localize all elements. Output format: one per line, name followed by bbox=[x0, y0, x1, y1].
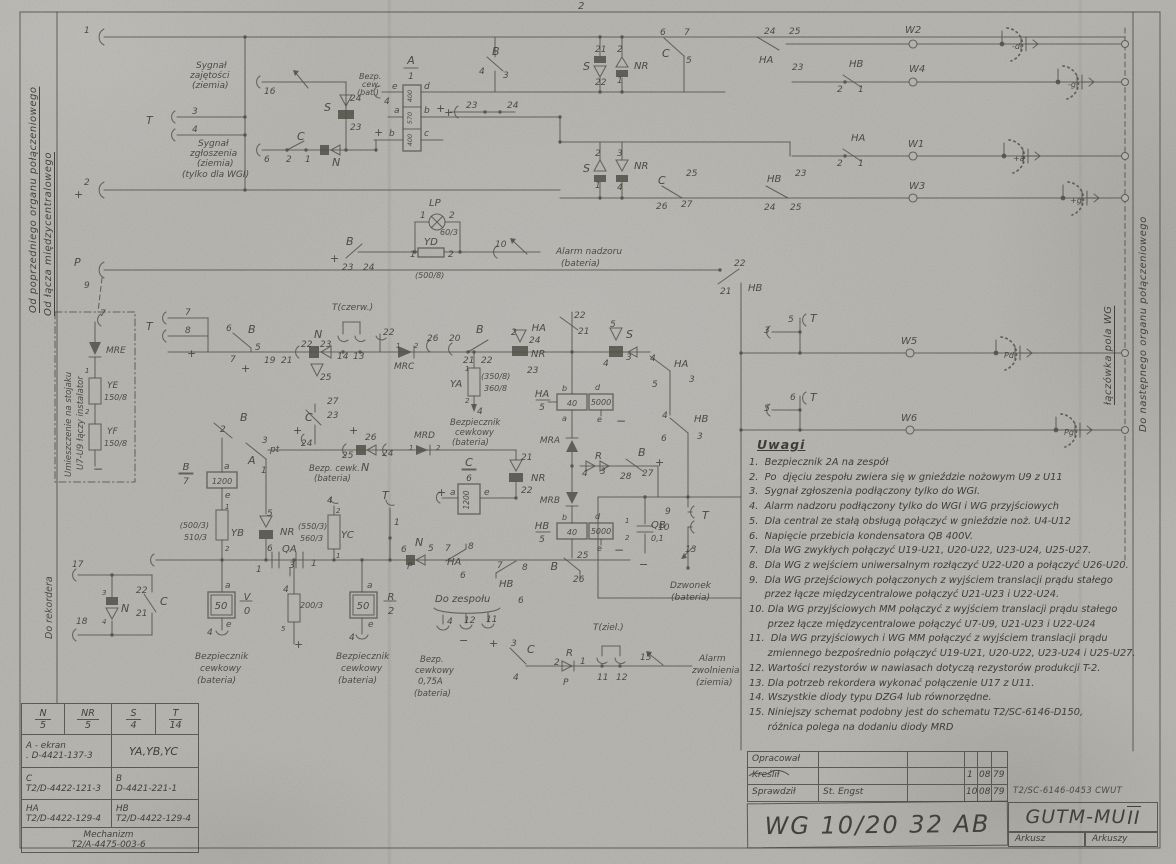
schematic-label: 1 bbox=[409, 444, 413, 452]
tb-d: 08 bbox=[978, 785, 992, 802]
parts-cell-A: A - ekran. D-4421-137-3 bbox=[22, 735, 111, 767]
schematic-label: 4 bbox=[192, 125, 198, 135]
schematic-label: 24 bbox=[382, 449, 394, 459]
schematic-label: 5000 bbox=[591, 527, 611, 536]
schematic-label: 5 bbox=[788, 315, 794, 325]
schematic-label: 2 bbox=[286, 155, 292, 165]
schematic-label: N bbox=[121, 602, 129, 615]
schematic-label: W6 bbox=[901, 413, 917, 424]
schematic-label: MRB bbox=[540, 496, 560, 506]
do-rekordera bbox=[73, 569, 156, 641]
schematic-label: Bezp. bbox=[420, 655, 444, 665]
schematic-label: 1 bbox=[410, 250, 416, 260]
schematic-label: 4 bbox=[513, 673, 519, 683]
schematic-label: 5 bbox=[539, 535, 545, 545]
schematic-label: Bezpiecznik bbox=[450, 418, 501, 428]
tb-name: St. Engst bbox=[819, 785, 908, 802]
schematic-label: 14 bbox=[337, 352, 349, 362]
schematic-label: 2 bbox=[449, 211, 455, 221]
schematic-label: 4 bbox=[479, 67, 485, 77]
schematic-label: 24 bbox=[764, 27, 776, 37]
schematic-label: B bbox=[476, 323, 484, 336]
schematic-label: + bbox=[187, 347, 196, 360]
schematic-label: 21 bbox=[136, 609, 147, 619]
schematic-label: B bbox=[248, 323, 256, 336]
schematic-label: 15 bbox=[640, 653, 652, 663]
schematic-label: 5 bbox=[281, 625, 286, 633]
schematic-label: b bbox=[389, 129, 395, 139]
schematic-label: U7-U9 łączy instalator bbox=[76, 376, 86, 470]
model-name: GUTM-MUII bbox=[1008, 802, 1158, 832]
schematic-label: 50 bbox=[357, 601, 370, 612]
schematic-label: + bbox=[444, 106, 453, 119]
schematic-label: HB bbox=[849, 59, 864, 70]
note-line: 5. Dla central ze stałą obsługą połączyć… bbox=[749, 515, 1163, 530]
schematic-label: -g bbox=[1068, 80, 1076, 89]
schematic-label: zajętości bbox=[189, 70, 230, 81]
schematic-label: 2 bbox=[554, 658, 560, 668]
schematic-label: 10 bbox=[495, 240, 507, 250]
schematic-label: 19 bbox=[264, 356, 276, 366]
tb-d: 1 bbox=[965, 768, 978, 785]
schematic-label: NR bbox=[531, 349, 545, 360]
schematic-label: − bbox=[616, 414, 626, 428]
schematic-label: 3 bbox=[192, 107, 198, 117]
schematic-label: 200/3 bbox=[300, 601, 323, 610]
schematic-label: 4 bbox=[650, 354, 656, 364]
schematic-label: 17 bbox=[72, 560, 84, 570]
schematic-label: 26 bbox=[427, 334, 439, 344]
schematic-label: YB bbox=[231, 528, 244, 539]
schematic-label: W2 bbox=[905, 25, 921, 36]
schematic-label: 1 bbox=[305, 155, 311, 165]
note-line: 10. Dla WG przyjściowych MM połączyć z w… bbox=[749, 603, 1163, 618]
schematic-label: +a bbox=[1013, 154, 1025, 163]
schematic-label: 0,1 bbox=[651, 534, 664, 543]
frac-den: 14 bbox=[169, 720, 181, 731]
schematic-label: 21 bbox=[578, 327, 589, 337]
tb-d: 10 bbox=[965, 785, 978, 802]
schematic-label: 6 bbox=[460, 571, 466, 581]
schematic-label: cewkowy bbox=[455, 428, 495, 438]
schematic-label: e bbox=[597, 544, 602, 553]
schematic-label: A bbox=[406, 54, 415, 67]
schematic-label: 2 bbox=[220, 425, 226, 435]
schematic-label: 25 bbox=[342, 451, 354, 461]
schematic-label: 6 bbox=[518, 596, 524, 606]
edge-label-right-edge: Do następnego organu połączeniowego bbox=[1138, 112, 1149, 432]
schematic-label: 5 bbox=[686, 56, 692, 66]
schematic-label: 8 bbox=[522, 563, 528, 573]
parts-frac-S: S4 bbox=[111, 704, 155, 734]
schematic-label: 9 bbox=[665, 507, 671, 517]
schematic-label: 0 bbox=[244, 606, 250, 617]
schematic-label: 24 bbox=[764, 203, 776, 213]
schematic-label: LP bbox=[429, 198, 442, 209]
schematic-label: 2 bbox=[837, 85, 843, 95]
schematic-label: 6 bbox=[401, 545, 407, 555]
schematic-label: 2 bbox=[84, 178, 90, 188]
schematic-label: 22 bbox=[521, 486, 533, 496]
schematic-label: 5 bbox=[610, 320, 616, 330]
schematic-label: 23 bbox=[527, 366, 539, 376]
schematic-label: S bbox=[583, 162, 590, 175]
schematic-label: − bbox=[614, 543, 624, 557]
schematic-label: 1 bbox=[465, 365, 469, 373]
schematic-label: 23 bbox=[792, 63, 804, 73]
schematic-label: 3 bbox=[697, 432, 703, 442]
schematic-label: N bbox=[415, 536, 423, 549]
schematic-label: 3 bbox=[503, 71, 509, 81]
schematic-label: C bbox=[465, 456, 473, 469]
schematic-label: 13 bbox=[353, 352, 365, 362]
note-line: 15. Niniejszy schemat podobny jest do sc… bbox=[749, 706, 1163, 721]
notes-title: Uwagi bbox=[757, 437, 1163, 452]
arkuszy-cell: Arkuszy bbox=[1085, 832, 1158, 847]
schematic-label: 1 bbox=[580, 657, 586, 667]
schematic-label: 6 bbox=[226, 324, 232, 334]
tb-signature bbox=[908, 768, 965, 785]
schematic-label: 6 bbox=[790, 393, 796, 403]
schematic-label: (350/8) bbox=[481, 372, 510, 381]
schematic-label: B bbox=[550, 560, 558, 573]
schematic-label: MRD bbox=[414, 431, 435, 441]
schematic-label: 2 bbox=[465, 397, 470, 405]
schematic-label: + bbox=[374, 126, 383, 139]
schematic-label: cewkowy bbox=[415, 666, 455, 676]
schematic-label: + bbox=[74, 188, 83, 201]
schematic-label: Alarm nadzoru bbox=[555, 247, 622, 257]
schematic-label: V bbox=[244, 592, 252, 603]
schematic-label: 1 bbox=[225, 503, 229, 511]
schematic-label: 150/8 bbox=[104, 393, 127, 402]
schematic-label: YE bbox=[107, 381, 118, 391]
schematic-label: Bezpiecznik bbox=[195, 652, 249, 662]
note-line: 4. Alarm nadzoru podłączony tylko do WGI… bbox=[749, 500, 1163, 515]
edge-label-left-outer: Od poprzedniego organu połączeniowego bbox=[28, 48, 39, 313]
parts-cell-HB: HBT2/D-4422-129-4 bbox=[111, 800, 195, 827]
schematic-label: 2 bbox=[625, 534, 630, 542]
schematic-label: 3 bbox=[511, 639, 517, 649]
schematic-label: 5 bbox=[764, 404, 770, 414]
schematic-label: Bezpiecznik bbox=[336, 652, 390, 662]
schematic-label: 60/3 bbox=[440, 228, 458, 237]
schematic-label: 510/3 bbox=[184, 533, 207, 542]
schematic-label: 22 bbox=[383, 328, 395, 338]
schematic-label: 150/8 bbox=[104, 439, 127, 448]
notes-block: Uwagi 1. Bezpiecznik 2A na zespół2. Po d… bbox=[749, 437, 1163, 735]
schematic-label: Do zespołu bbox=[435, 594, 490, 605]
schematic-label: (ziemia) bbox=[192, 81, 229, 91]
schematic-label: 22 bbox=[595, 78, 607, 88]
schematic-label: 570 bbox=[406, 112, 414, 124]
schematic-label: b bbox=[424, 106, 430, 116]
schematic-label: HB bbox=[499, 579, 514, 590]
schematic-label: 1 bbox=[394, 518, 400, 528]
schematic-label: 1 bbox=[858, 85, 864, 95]
tb-d bbox=[992, 751, 1008, 768]
schematic-label: pt bbox=[269, 445, 280, 455]
schematic-label: 360/8 bbox=[484, 384, 507, 393]
schematic-label: HB bbox=[694, 414, 709, 425]
schematic-label: 28 bbox=[620, 472, 632, 482]
schematic-label: 22 bbox=[136, 586, 148, 596]
schematic-label: (bat.) bbox=[357, 88, 379, 97]
schematic-label: T bbox=[146, 114, 154, 127]
schematic-label: + bbox=[489, 637, 498, 650]
schematic-label: Do rekordera bbox=[44, 576, 55, 639]
frac-den: 4 bbox=[130, 720, 136, 731]
schematic-label: 4 bbox=[477, 407, 483, 417]
schematic-label: C bbox=[160, 595, 168, 608]
schematic-label: 4 bbox=[617, 183, 623, 193]
schematic-label: 23 bbox=[350, 123, 362, 133]
schematic-label: HA bbox=[674, 359, 689, 370]
schematic-label: 8 bbox=[468, 542, 474, 552]
schematic-label: a bbox=[394, 106, 400, 116]
schematic-label: 8 bbox=[185, 326, 191, 336]
schematic-label: Dzwonek bbox=[670, 581, 712, 591]
schematic-label: 4 bbox=[662, 411, 668, 421]
tb-d: 79 bbox=[992, 785, 1008, 802]
parts-cell-HA: HAT2/D-4422-129-4 bbox=[22, 800, 111, 827]
schematic-label: e bbox=[597, 415, 602, 424]
schematic-label: HA bbox=[851, 133, 866, 144]
schematic-label: Pd bbox=[1004, 351, 1015, 360]
parts-cell-mechanizm: MechanizmT2/A-4475-003-6 bbox=[22, 828, 195, 852]
schematic-label: a bbox=[224, 462, 230, 472]
schematic-label: (ziemia) bbox=[696, 678, 733, 688]
schematic-label: 4 bbox=[327, 496, 333, 506]
note-line: 7. Dla WG zwykłych połączyć U19-U21, U20… bbox=[749, 544, 1163, 559]
schematic-label: 27 bbox=[327, 397, 339, 407]
schematic-label: S bbox=[583, 60, 590, 73]
schematic-label: YD bbox=[424, 237, 438, 248]
tb-d bbox=[978, 751, 992, 768]
schematic-label: 13 bbox=[685, 545, 697, 555]
frac-den: 5 bbox=[40, 720, 46, 731]
schematic-label: b bbox=[562, 384, 567, 393]
schematic-label: A bbox=[247, 454, 256, 467]
schematic-label: a bbox=[450, 488, 456, 498]
schematic-label: +g bbox=[1070, 196, 1082, 205]
schematic-label: 22 bbox=[734, 259, 746, 269]
note-line: 11. Dla WG przyjściowych i WG MM połączy… bbox=[749, 632, 1163, 647]
tb-d bbox=[965, 751, 978, 768]
schematic-label: 7 bbox=[183, 477, 189, 487]
schematic-label: zgłoszenia bbox=[189, 149, 237, 159]
frac-den: 5 bbox=[85, 720, 91, 731]
schematic-label: P bbox=[407, 562, 413, 572]
schematic-label: d bbox=[595, 512, 601, 521]
schematic-label: 10 bbox=[658, 523, 670, 533]
schematic-label: 2 bbox=[414, 342, 419, 350]
schematic-label: 400 bbox=[406, 134, 414, 146]
schematic-label: 3 bbox=[102, 589, 106, 597]
schematic-label: MRC bbox=[394, 362, 415, 372]
schematic-label: T bbox=[702, 509, 710, 522]
schematic-label: zwolnienia bbox=[691, 666, 740, 676]
schematic-label: + bbox=[330, 252, 339, 265]
schematic-label: YA bbox=[450, 379, 462, 390]
schematic-label: S bbox=[324, 101, 331, 114]
schematic-label: C bbox=[658, 174, 666, 187]
schematic-label: 16 bbox=[264, 87, 276, 97]
schematic-label: YF bbox=[107, 427, 118, 437]
schematic-label: cewkowy bbox=[341, 664, 383, 674]
schematic-label: HB bbox=[767, 174, 782, 185]
schematic-label: 2 bbox=[388, 606, 394, 617]
note-line: 9. Dla WG przejściowych połączonych z wy… bbox=[749, 574, 1163, 589]
schematic-label: N bbox=[332, 156, 340, 169]
parts-cell-B: BD-4421-221-1 bbox=[111, 768, 195, 799]
schematic-label: 4 bbox=[447, 617, 453, 627]
tb-sig-empty bbox=[908, 751, 965, 768]
schematic-label: 21 bbox=[720, 287, 731, 297]
tb-name bbox=[819, 751, 908, 768]
schematic-label: 4 bbox=[283, 585, 289, 595]
schematic-label: P bbox=[74, 256, 81, 269]
schematic-label: 2 bbox=[595, 149, 601, 159]
schematic-label: a bbox=[562, 414, 567, 423]
schematic-label: (bateria) bbox=[338, 676, 377, 686]
schematic-label: 4 bbox=[102, 618, 106, 626]
schematic-label: 1 bbox=[408, 72, 414, 82]
parts-table: N5 NR5 S4 T14 A - ekran. D-4421-137-3 YA… bbox=[21, 703, 199, 853]
schematic-label: 23 bbox=[327, 411, 339, 421]
schematic-label: (500/3) bbox=[180, 521, 209, 530]
schematic-label: P bbox=[563, 678, 569, 688]
schematic-label: 24 bbox=[507, 101, 519, 111]
tb-label-sprawdzil: Sprawdził bbox=[747, 785, 819, 802]
schematic-label: W5 bbox=[901, 336, 917, 347]
schematic-label: cewkowy bbox=[200, 664, 242, 674]
schematic-label: 40 bbox=[567, 399, 577, 408]
schematic-label: 5 bbox=[267, 509, 273, 519]
schematic-label: 2 bbox=[617, 45, 623, 55]
schematic-label: 9 bbox=[84, 281, 90, 291]
schematic-label: B bbox=[638, 446, 646, 459]
schematic-label: 6 bbox=[264, 155, 270, 165]
note-line: zmiennego bezpośrednio połączyć U19-U21,… bbox=[749, 647, 1163, 662]
schematic-label: R bbox=[566, 648, 573, 659]
frac-num: T bbox=[169, 708, 183, 720]
schematic-label: d bbox=[424, 82, 430, 92]
schematic-label: 26 bbox=[573, 575, 585, 585]
schematic-label: 12 bbox=[464, 616, 476, 626]
schematic-label: 2 bbox=[511, 328, 517, 338]
schematic-label: QA bbox=[282, 544, 297, 555]
schematic-label: 22 bbox=[574, 311, 586, 321]
schematic-label: e bbox=[368, 620, 374, 630]
note-line: 1. Bezpiecznik 2A na zespół bbox=[749, 456, 1163, 471]
tb-label-opracowal: Opracował bbox=[747, 751, 819, 768]
schematic-label: NR bbox=[531, 473, 545, 484]
schematic-label: 1 bbox=[85, 367, 89, 375]
schematic-label: 22 bbox=[481, 356, 493, 366]
schematic-label: a bbox=[367, 581, 373, 591]
schematic-label: MRE bbox=[106, 346, 126, 356]
edge-label-left-inner: Od łącza międzycentralowego bbox=[43, 86, 54, 316]
parts-cell-C: CT2/D-4422-121-3 bbox=[22, 768, 111, 799]
parts-cell-Y: YA,YB,YC bbox=[111, 735, 195, 767]
schematic-label: 24 bbox=[529, 336, 541, 346]
note-line: 12. Wartości rezystorów w nawiasach doty… bbox=[749, 662, 1163, 677]
tb-d: 08 bbox=[978, 768, 992, 785]
schematic-label: 27 bbox=[681, 200, 693, 210]
schematic-label: NR bbox=[634, 161, 648, 172]
schematic-label: 1 bbox=[256, 565, 262, 575]
schematic-label: NR bbox=[280, 527, 294, 538]
schematic-label: 2 bbox=[336, 507, 341, 515]
note-line: przez łącze międzycentralowe połączyć U2… bbox=[749, 588, 1163, 603]
schematic-label: NR bbox=[634, 61, 648, 72]
schematic-label: B bbox=[492, 45, 500, 58]
schematic-label: 21 bbox=[281, 356, 292, 366]
schematic-label: − bbox=[93, 462, 103, 476]
schematic-label: Pg bbox=[1064, 428, 1074, 437]
arkusz-cell: Arkusz bbox=[1008, 832, 1085, 847]
schematic-label: 5 bbox=[255, 343, 261, 353]
schematic-label: Sygnał bbox=[198, 139, 229, 149]
schematic-label: 1200 bbox=[462, 490, 471, 509]
schematic-label: (bateria) bbox=[314, 474, 351, 484]
schematic-label: (bateria) bbox=[414, 689, 451, 699]
plug-jack-symbols bbox=[994, 28, 1099, 447]
schematic-label: (ziemia) bbox=[197, 159, 234, 169]
schematic-label: 7 bbox=[100, 309, 106, 319]
schematic-label: C bbox=[305, 411, 313, 424]
schematic-label: (bateria) bbox=[561, 259, 600, 269]
model-prefix: GUTM-MU bbox=[1025, 806, 1126, 828]
schematic-label: 12 bbox=[616, 673, 628, 683]
schematic-label: c bbox=[424, 129, 429, 139]
tb-sig-empty bbox=[908, 785, 965, 802]
schematic-label: 6 bbox=[660, 28, 666, 38]
drawing-title: WG 10/20 32 AB bbox=[747, 801, 1008, 849]
schematic-label: 25 bbox=[789, 27, 801, 37]
schematic-label: 22 bbox=[301, 340, 313, 350]
schematic-label: Alarm bbox=[698, 654, 726, 664]
schematic-label: 26 bbox=[656, 202, 668, 212]
notes-list: 1. Bezpiecznik 2A na zespół2. Po djęciu … bbox=[749, 456, 1163, 735]
schematic-label: 25 bbox=[790, 203, 802, 213]
page-number: 2 bbox=[578, 1, 584, 12]
schematic-label: + bbox=[437, 486, 446, 499]
schematic-label: 1 bbox=[261, 466, 267, 476]
schematic-label: 24 bbox=[301, 439, 313, 449]
schematic-label: 25 bbox=[577, 551, 589, 561]
schematic-label: N bbox=[314, 328, 322, 341]
note-line: 2. Po djęciu zespołu zwiera się w gnieźd… bbox=[749, 471, 1163, 486]
schematic-label: C bbox=[662, 47, 670, 60]
schematic-label: 11 bbox=[597, 673, 608, 683]
frac-num: NR bbox=[77, 708, 99, 720]
w-terminals-jacks bbox=[906, 40, 1129, 434]
schematic-label: e bbox=[225, 491, 231, 501]
schematic-label: 24 bbox=[363, 263, 375, 273]
schematic-label: 3 bbox=[262, 436, 268, 446]
schematic-label: 4 bbox=[582, 469, 588, 479]
schematic-label: 40 bbox=[567, 528, 577, 537]
schematic-label: 21 bbox=[521, 453, 532, 463]
schematic-label: 5 bbox=[539, 403, 545, 413]
schematic-label: 1 bbox=[311, 559, 317, 569]
schematic-label: 400 bbox=[406, 90, 414, 102]
note-line: przez łącze międzycentralowe połączyć U7… bbox=[749, 618, 1163, 633]
schematic-label: W1 bbox=[908, 139, 924, 150]
schematic-label: B bbox=[346, 235, 354, 248]
